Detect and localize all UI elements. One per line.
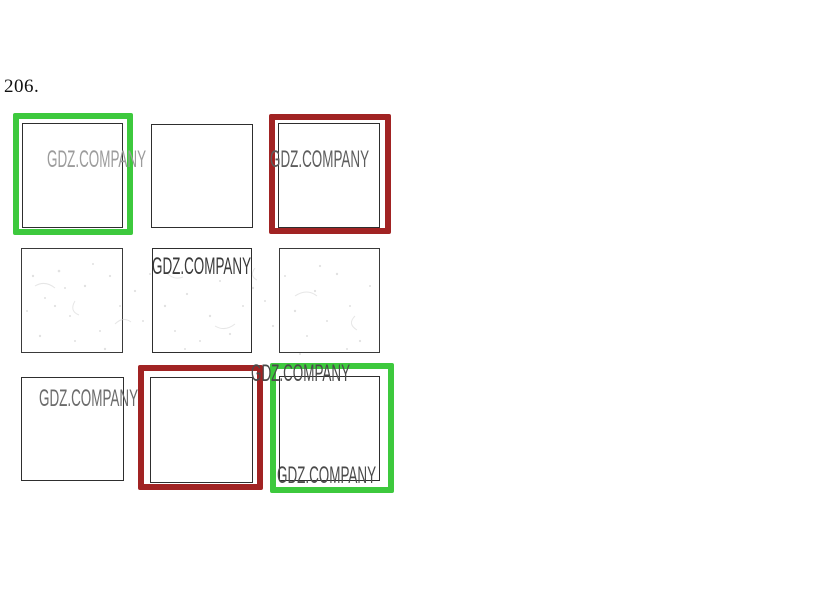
- watermark-row1-col1: GDZ.COMPANY: [47, 148, 146, 172]
- grid-cell-row1-col2[interactable]: [151, 124, 253, 228]
- grid-cell-row1-col1[interactable]: [22, 123, 123, 228]
- watermark-row3-col1: GDZ.COMPANY: [39, 387, 138, 411]
- grid-cell-row3-col2[interactable]: [150, 377, 253, 483]
- grid-cell-row1-col3[interactable]: [278, 123, 380, 228]
- watermark-row3-col3-top: GDZ.COMPANY: [251, 362, 350, 386]
- watermark-row2-col2: GDZ.COMPANY: [152, 255, 251, 279]
- watermark-row3-col3-bottom: GDZ.COMPANY: [277, 464, 376, 488]
- watermark-row1-col3: GDZ.COMPANY: [270, 148, 369, 172]
- exercise-page: 206.: [0, 0, 823, 602]
- question-number: 206.: [4, 76, 39, 98]
